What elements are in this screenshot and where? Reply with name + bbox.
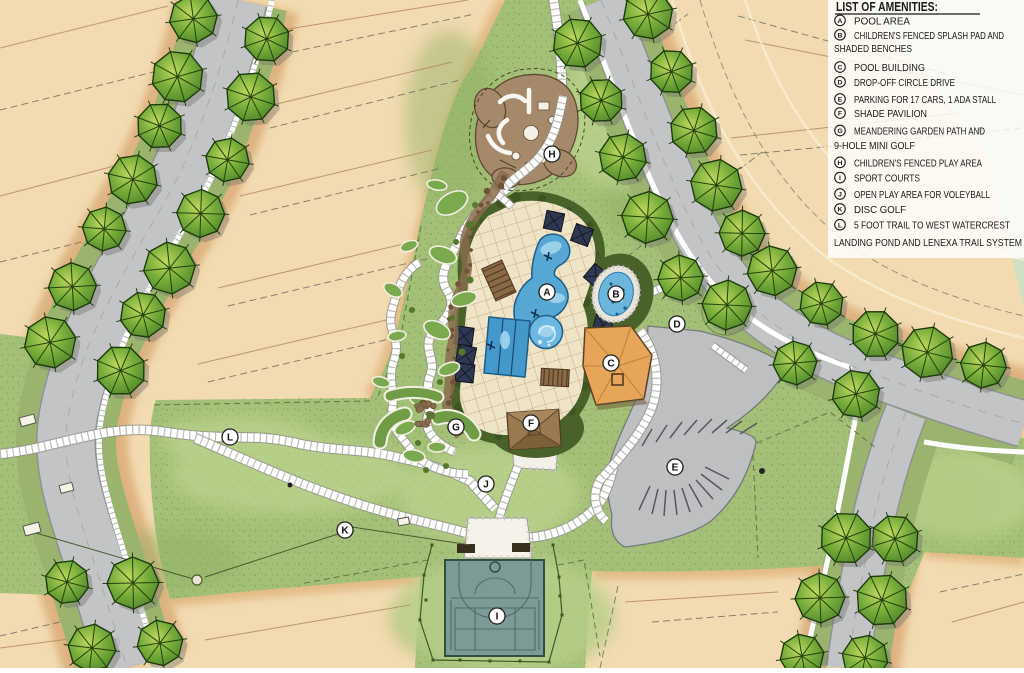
svg-text:MEANDERING GARDEN PATH AND: MEANDERING GARDEN PATH AND (854, 127, 985, 138)
svg-text:L: L (227, 433, 233, 444)
svg-text:B: B (612, 290, 619, 301)
svg-text:DISC GOLF: DISC GOLF (854, 205, 906, 216)
svg-text:POOL BUILDING: POOL BUILDING (854, 63, 925, 74)
svg-text:OPEN PLAY AREA FOR VOLEYBALL: OPEN PLAY AREA FOR VOLEYBALL (854, 190, 990, 201)
svg-text:J: J (483, 480, 489, 491)
svg-text:H: H (548, 150, 555, 161)
svg-text:5 FOOT TRAIL TO WEST WATERCRES: 5 FOOT TRAIL TO WEST WATERCREST (854, 221, 1011, 232)
svg-text:E: E (838, 97, 843, 104)
svg-text:POOL AREA: POOL AREA (854, 16, 910, 27)
svg-text:I: I (496, 612, 499, 623)
svg-text:L: L (838, 222, 842, 229)
svg-text:J: J (838, 192, 842, 199)
svg-text:LIST OF AMENITIES:: LIST OF AMENITIES: (836, 0, 938, 14)
svg-text:B: B (838, 32, 843, 39)
svg-text:SHADED BENCHES: SHADED BENCHES (834, 44, 912, 55)
svg-text:DROP-OFF CIRCLE DRIVE: DROP-OFF CIRCLE DRIVE (854, 78, 955, 89)
svg-text:C: C (607, 359, 614, 370)
svg-text:9-HOLE MINI GOLF: 9-HOLE MINI GOLF (834, 141, 915, 152)
svg-text:H: H (838, 160, 843, 167)
svg-text:LANDING POND AND LENEXA TRAIL: LANDING POND AND LENEXA TRAIL SYSTEM (834, 238, 1022, 249)
svg-text:E: E (672, 463, 679, 474)
svg-text:C: C (838, 65, 843, 72)
svg-text:CHILDREN'S FENCED PLAY AREA: CHILDREN'S FENCED PLAY AREA (854, 158, 982, 169)
svg-text:SPORT COURTS: SPORT COURTS (854, 174, 920, 185)
svg-text:PARKING FOR 17 CARS, 1 ADA STA: PARKING FOR 17 CARS, 1 ADA STALL (854, 95, 996, 106)
svg-text:F: F (528, 419, 534, 430)
svg-text:CHILDREN'S FENCED SPLASH PAD A: CHILDREN'S FENCED SPLASH PAD AND (854, 31, 1004, 42)
svg-text:G: G (837, 128, 842, 135)
svg-text:G: G (452, 423, 460, 434)
svg-text:SHADE PAVILION: SHADE PAVILION (854, 109, 927, 120)
svg-text:A: A (543, 288, 550, 299)
svg-text:D: D (838, 79, 843, 86)
svg-text:K: K (838, 207, 843, 214)
svg-text:F: F (838, 111, 842, 118)
svg-text:K: K (341, 526, 349, 537)
svg-text:A: A (838, 18, 843, 25)
svg-text:D: D (673, 320, 680, 331)
svg-text:I: I (839, 175, 841, 182)
